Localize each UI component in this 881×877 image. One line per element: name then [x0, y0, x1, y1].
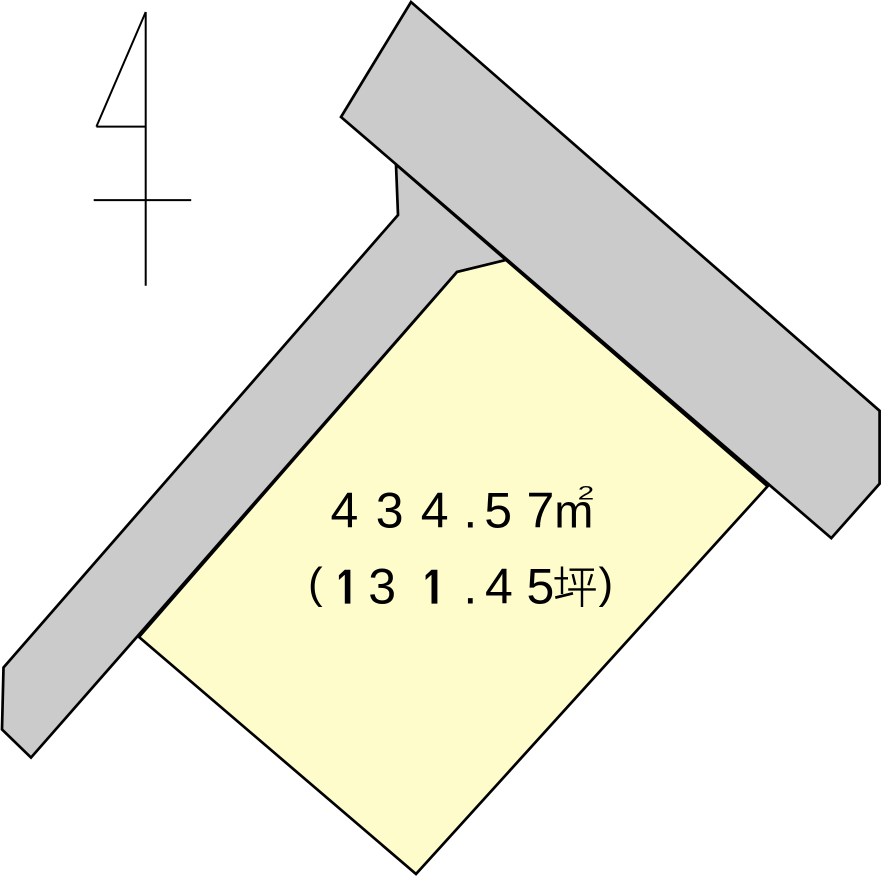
svg-text:): )	[599, 559, 614, 608]
svg-text:(: (	[308, 559, 323, 608]
svg-text:2: 2	[578, 483, 595, 504]
